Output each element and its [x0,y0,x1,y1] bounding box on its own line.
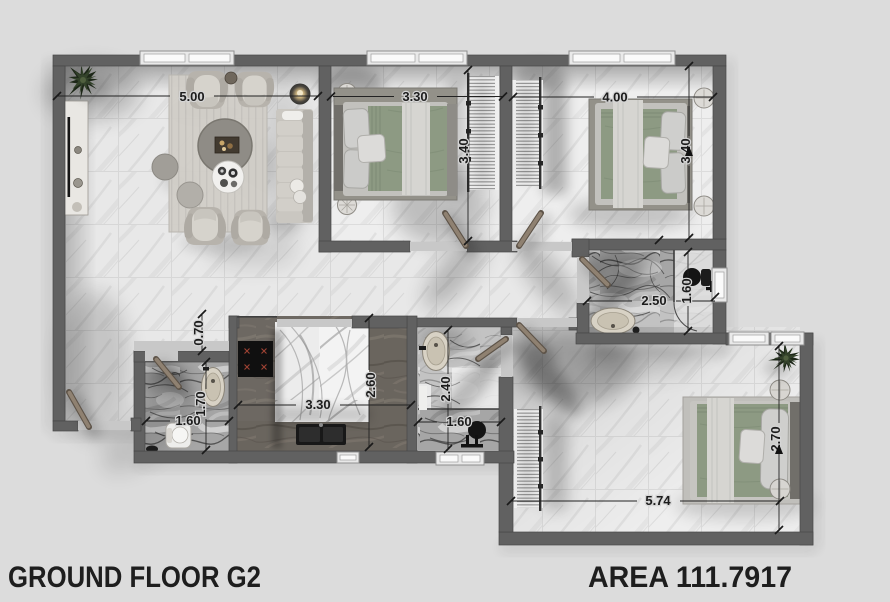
svg-text:4.00: 4.00 [602,90,627,105]
svg-text:2.70: 2.70 [768,426,783,451]
svg-text:3.30: 3.30 [402,89,427,104]
svg-text:3.30: 3.30 [305,397,330,412]
svg-text:1.60: 1.60 [446,414,471,429]
svg-text:3.40: 3.40 [456,138,471,163]
svg-text:2.60: 2.60 [363,372,378,397]
svg-text:2.40: 2.40 [438,376,453,401]
svg-text:1.60: 1.60 [175,413,200,428]
svg-text:1.60: 1.60 [679,278,694,303]
svg-text:5.74: 5.74 [645,493,671,508]
svg-text:GROUND FLOOR G2: GROUND FLOOR G2 [8,561,261,594]
svg-text:5.00: 5.00 [179,89,204,104]
svg-text:0.70: 0.70 [191,320,206,345]
svg-text:2.50: 2.50 [641,293,666,308]
svg-text:AREA 111.7917: AREA 111.7917 [588,561,792,594]
